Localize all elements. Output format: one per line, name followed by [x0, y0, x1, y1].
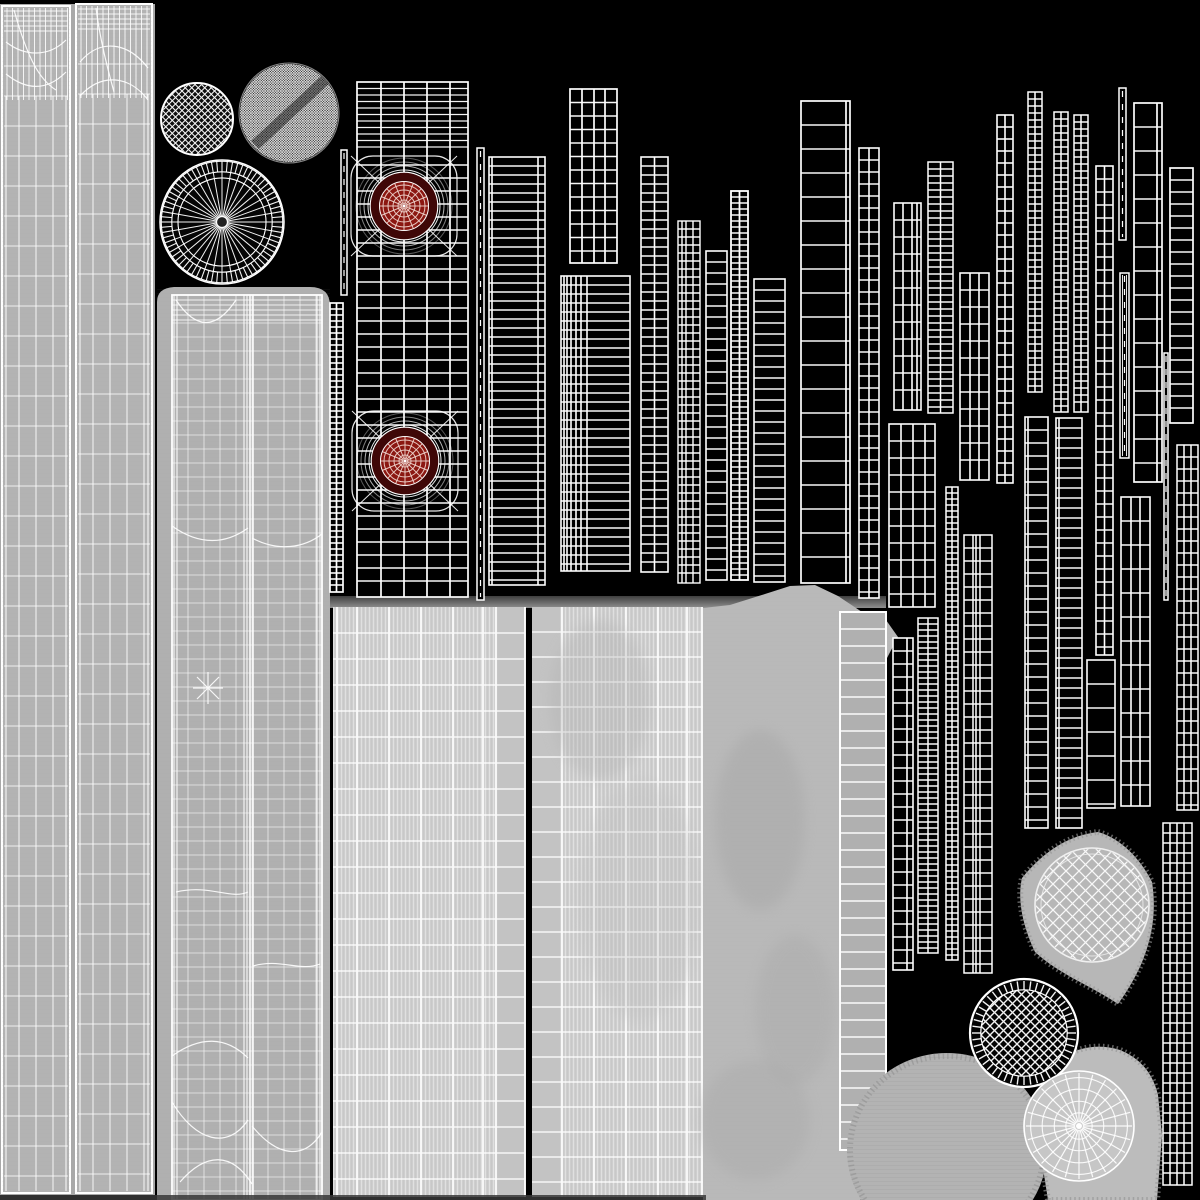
- uv-strip-q: [928, 162, 953, 413]
- uv-strip-k: [731, 191, 748, 580]
- uv-strip-j: [706, 251, 727, 580]
- uv-strip-l: [754, 279, 785, 582]
- uv-strip-c: [330, 303, 343, 592]
- uv-strip-e: [489, 157, 545, 585]
- uv-grid-ah: [1121, 497, 1150, 806]
- uv-texture-atlas-page: [0, 0, 1200, 1200]
- uv-strip-ag: [1164, 353, 1168, 600]
- uv-strip-ae: [1134, 103, 1162, 482]
- uv-grid-p: [889, 424, 935, 607]
- bottom-shadow-band: [0, 1195, 706, 1200]
- pants-uv-panel-right: [76, 4, 152, 1193]
- uv-strip-x: [1054, 112, 1068, 412]
- uv-strip-z: [1074, 115, 1088, 412]
- heel-crosshatch-circle: [970, 979, 1078, 1087]
- uv-strip-t: [964, 535, 992, 973]
- uv-strip-ak: [918, 618, 938, 953]
- uv-strip-af: [1170, 168, 1193, 423]
- sole-radial-wheel: [160, 160, 284, 284]
- uv-strip-i: [678, 221, 700, 583]
- cap-moire-circle: [239, 63, 339, 163]
- cap-crosshatch-circle: [161, 83, 233, 155]
- uv-strip-ac: [1119, 88, 1126, 240]
- uv-grid-ai: [1177, 445, 1198, 810]
- sphere-wireframe: [1035, 848, 1149, 962]
- leg-uv-panel: [157, 287, 330, 1200]
- uv-strip-w: [1025, 417, 1048, 828]
- cuff-radial-wheel: [1024, 1071, 1134, 1181]
- uv-grid-al: [1163, 823, 1192, 1185]
- uv-strip-h: [641, 157, 668, 572]
- fabric-strap-ladder: [840, 612, 886, 1150]
- uv-strip-v: [1028, 92, 1042, 392]
- pants-uv-panel-left: [2, 6, 70, 1193]
- uv-strip-u: [997, 115, 1013, 483]
- uv-strip-b: [341, 150, 347, 295]
- fabric-panel-bottom-left: [333, 607, 525, 1197]
- uv-grid-o: [894, 203, 921, 410]
- uv-strip-aj: [893, 638, 913, 970]
- uv-strip-ad: [1120, 273, 1129, 458]
- uv-grid-f: [570, 89, 617, 263]
- uv-strip-ab: [1087, 660, 1115, 808]
- uv-strip-aa: [1096, 166, 1113, 655]
- uv-strip-r: [946, 487, 958, 960]
- uv-atlas-image: [0, 0, 1200, 1200]
- uv-strip-n: [859, 148, 879, 598]
- uv-strip-m: [801, 101, 850, 583]
- uv-strip-d: [477, 148, 484, 600]
- uv-grid-s: [960, 273, 989, 480]
- uv-strip-y: [1056, 418, 1082, 828]
- uv-panel-g: [561, 276, 630, 571]
